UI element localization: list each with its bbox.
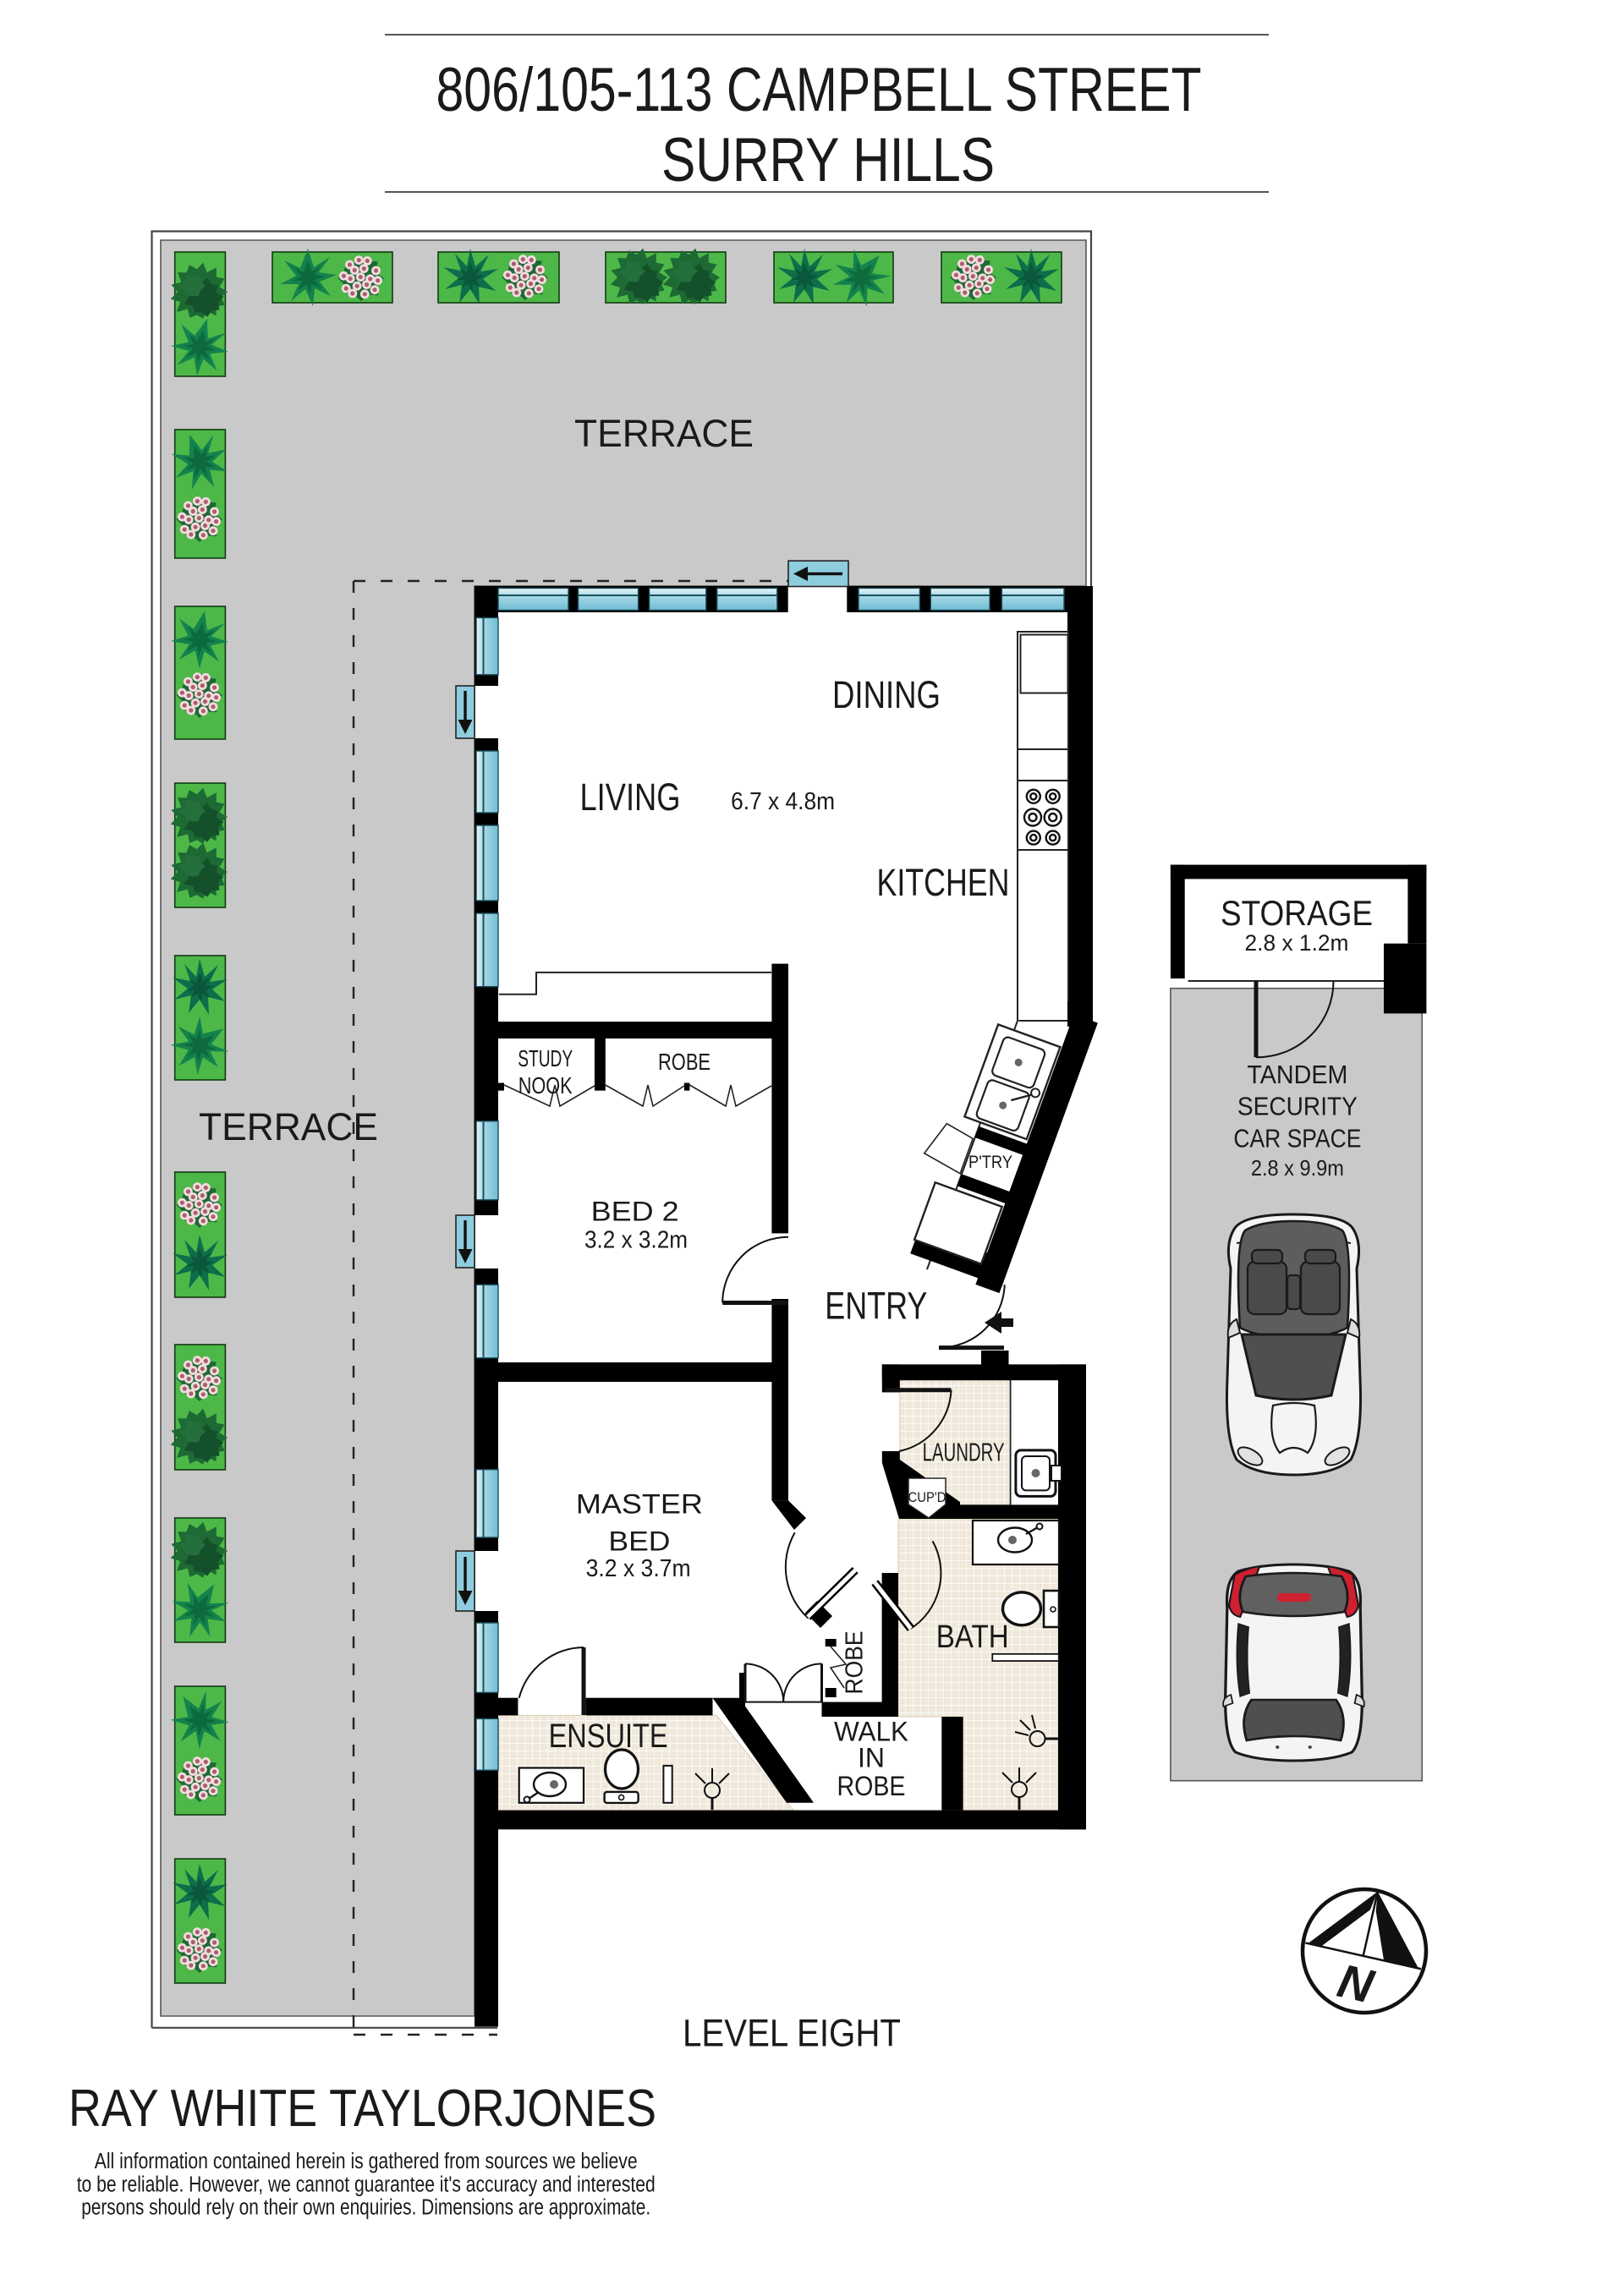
svg-text:SURRY HILLS: SURRY HILLS: [661, 126, 995, 195]
svg-text:ENSUITE: ENSUITE: [549, 1718, 668, 1755]
svg-text:CAR SPACE: CAR SPACE: [1233, 1123, 1361, 1153]
svg-text:ENTRY: ENTRY: [825, 1284, 927, 1327]
svg-text:MASTER: MASTER: [576, 1488, 703, 1519]
svg-text:ROBE: ROBE: [837, 1771, 906, 1801]
svg-text:CUP'D: CUP'D: [908, 1489, 946, 1505]
svg-text:2.8 x 1.2m: 2.8 x 1.2m: [1245, 930, 1349, 956]
svg-text:3.2 x 3.7m: 3.2 x 3.7m: [586, 1555, 691, 1582]
svg-text:BATH: BATH: [936, 1619, 1009, 1655]
svg-text:P'TRY: P'TRY: [968, 1153, 1012, 1172]
svg-text:3.2 x 3.2m: 3.2 x 3.2m: [584, 1226, 688, 1253]
svg-text:STORAGE: STORAGE: [1221, 893, 1373, 933]
svg-text:IN: IN: [858, 1743, 885, 1773]
svg-text:KITCHEN: KITCHEN: [877, 861, 1010, 904]
svg-text:TERRACE: TERRACE: [574, 412, 754, 455]
svg-text:NOOK: NOOK: [518, 1072, 573, 1099]
svg-text:STUDY: STUDY: [518, 1045, 573, 1071]
svg-text:BED 2: BED 2: [591, 1196, 679, 1226]
svg-text:TANDEM: TANDEM: [1247, 1060, 1347, 1089]
svg-text:LAUNDRY: LAUNDRY: [923, 1438, 1005, 1467]
svg-text:2.8 x 9.9m: 2.8 x 9.9m: [1251, 1155, 1344, 1181]
svg-text:to be reliable. However, we ca: to be reliable. However, we cannot guara…: [77, 2173, 656, 2197]
svg-text:RAY WHITE TAYLORJONES: RAY WHITE TAYLORJONES: [69, 2080, 656, 2138]
svg-text:TERRACE: TERRACE: [199, 1105, 378, 1148]
svg-text:ROBE: ROBE: [842, 1631, 869, 1695]
svg-text:SECURITY: SECURITY: [1237, 1092, 1358, 1121]
svg-text:persons should rely on their o: persons should rely on their own enquiri…: [81, 2196, 650, 2220]
svg-text:6.7 x 4.8m: 6.7 x 4.8m: [731, 788, 835, 815]
svg-text:All information contained here: All information contained herein is gath…: [95, 2150, 638, 2173]
svg-text:LIVING: LIVING: [580, 775, 681, 819]
svg-text:806/105-113 CAMPBELL STREET: 806/105-113 CAMPBELL STREET: [436, 56, 1202, 124]
svg-text:DINING: DINING: [832, 673, 941, 716]
svg-text:ROBE: ROBE: [658, 1049, 710, 1075]
svg-text:BED: BED: [608, 1526, 670, 1556]
svg-text:LEVEL EIGHT: LEVEL EIGHT: [683, 2012, 901, 2055]
